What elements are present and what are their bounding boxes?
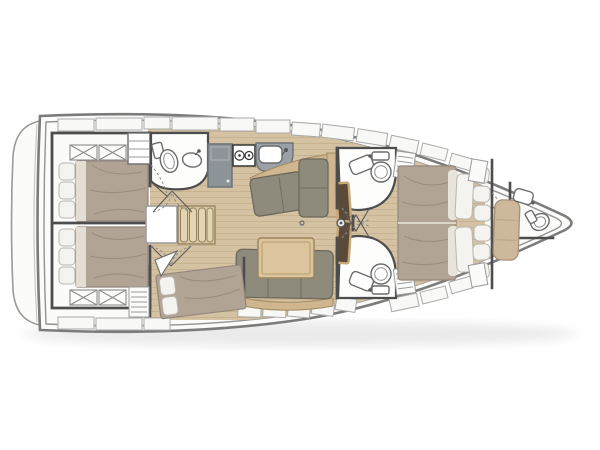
yacht-floor-plan [0, 0, 600, 450]
companionway-stairs [178, 206, 215, 244]
bow-berth-cushion [493, 200, 520, 261]
stove-burner-icon [233, 145, 255, 166]
toilet-icon [371, 152, 391, 182]
floor-plan-canvas [0, 0, 600, 450]
salon-table [258, 238, 314, 278]
aft-port-bed [59, 161, 148, 221]
aft-starboard-bed [59, 227, 148, 287]
fridge [208, 144, 232, 187]
mast-post-icon [337, 219, 345, 227]
companionway-box [146, 206, 177, 243]
toilet-icon [371, 264, 391, 294]
